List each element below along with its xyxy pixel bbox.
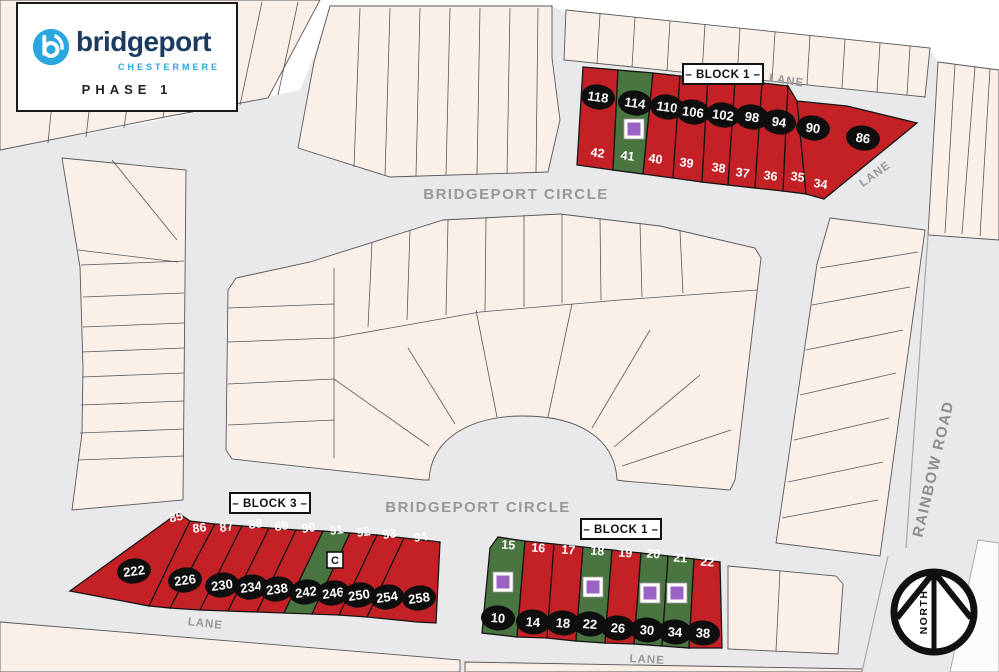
lot-number: 15 [501,538,516,553]
lot-number: 92 [356,524,372,540]
lot-number: 89 [274,518,290,534]
lot-number: 86 [192,520,208,536]
block-label: – BLOCK 1 – [581,519,661,539]
lot-number: 94 [413,529,429,545]
address-number: 238 [265,580,289,598]
lot-number: 22 [700,555,715,570]
address-number: 10 [490,610,505,626]
address-number: 30 [639,622,654,638]
lot-number: 90 [301,520,317,536]
address-number: 246 [321,584,345,602]
address-number: 34 [667,624,683,640]
brand-name: bridgeport [76,26,228,58]
north-arrow: NORTH [894,572,974,652]
address-number: 86 [855,130,871,147]
address-number: 94 [771,114,788,131]
address-number: 226 [173,571,197,589]
address-number: 234 [239,578,263,596]
marker-letter: C [331,555,339,567]
lot-number: 41 [620,148,636,164]
address-number: 254 [375,588,399,606]
lot-marker-square [624,119,644,139]
road-label-bridgeport-circle-bottom: BRIDGEPORT CIRCLE [385,499,571,516]
address-number: 110 [656,98,679,116]
address-number: 102 [711,106,735,124]
address-number: 106 [681,103,705,121]
lot-marker-square [493,572,513,592]
lot-number: 38 [711,160,727,176]
bridgeport-logo-icon [32,28,70,66]
block-label: – BLOCK 3 – [230,493,310,513]
address-number: 222 [122,562,146,580]
address-number: 242 [294,583,318,601]
block-label-text: – BLOCK 1 – [583,524,658,536]
address-number: 98 [744,109,760,126]
address-number: 118 [587,88,610,106]
road-label-bridgeport-circle-top: BRIDGEPORT CIRCLE [423,186,609,203]
lot-number: 91 [329,522,345,538]
block-label: – BLOCK 1 – [683,64,763,84]
road-label-lane-s: LANE [629,653,665,667]
marker-fill [587,581,600,594]
lots-area-south-corner [728,566,843,654]
brand-city: CHESTERMERE [118,62,220,72]
marker-fill [497,576,510,589]
lot-number: 93 [382,526,398,542]
address-number: 18 [555,615,570,631]
address-number: 26 [610,620,625,636]
lot-marker-c: C [327,552,343,568]
block-label-text: – BLOCK 3 – [232,498,307,510]
lots-area-north-center [298,6,560,177]
address-number: 258 [407,589,431,607]
lot-number: 19 [618,546,633,561]
marker-fill [628,123,641,136]
lot-number: 35 [790,169,806,185]
title-block: bridgeport CHESTERMERE PHASE 1 [16,2,238,112]
lot-number: 16 [531,541,546,556]
lot-marker-square [583,577,603,597]
north-arrow-label: NORTH [918,590,930,635]
lot-number: 21 [673,551,688,566]
address-number: 14 [525,614,541,630]
lot-number: 40 [648,151,664,167]
lot-number: 18 [590,544,605,559]
lot-number: 36 [763,168,779,184]
lot-marker-square [667,583,687,603]
lot-number: 42 [590,145,606,161]
address-number: 38 [695,625,710,641]
phase-label: PHASE 1 [18,82,236,97]
lot-number: 88 [248,516,264,532]
lot-marker-square [640,583,660,603]
lot-number: 87 [219,519,235,535]
address-number: 230 [210,576,234,594]
block-label-text: – BLOCK 1 – [685,69,760,81]
lot-number: 39 [679,155,695,171]
lot-number: 20 [646,547,661,562]
lot-number: 37 [735,165,751,181]
lot-number: 34 [813,176,829,192]
marker-fill [644,587,657,600]
address-number: 22 [582,616,597,632]
site-plan-page: 1184211441110401063910238983794369035863… [0,0,999,672]
marker-fill [671,587,684,600]
lot-number: 17 [561,543,576,558]
address-number: 114 [624,94,648,112]
address-number: 250 [347,586,371,604]
address-number: 90 [805,120,821,137]
